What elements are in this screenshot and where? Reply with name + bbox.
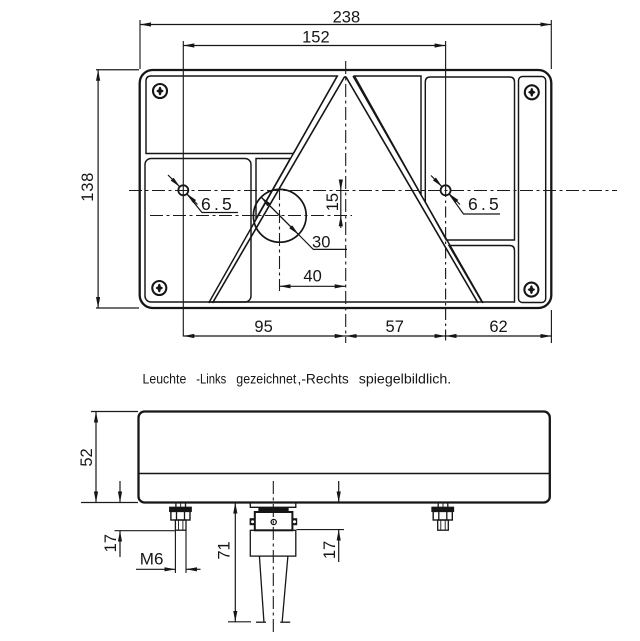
svg-text:95: 95: [254, 318, 272, 336]
svg-text:6.5: 6.5: [468, 194, 502, 214]
svg-text:152: 152: [302, 29, 330, 47]
svg-text:17: 17: [102, 534, 120, 552]
svg-text:15: 15: [324, 193, 342, 211]
svg-text:Leuchte: Leuchte: [143, 372, 187, 387]
svg-text:71: 71: [216, 541, 234, 559]
svg-text:138: 138: [79, 172, 97, 202]
svg-text:M6: M6: [140, 550, 164, 569]
svg-text:62: 62: [489, 318, 507, 336]
svg-text:30: 30: [312, 234, 330, 252]
svg-text:-Links: -Links: [196, 372, 226, 387]
svg-text:6.5: 6.5: [201, 194, 235, 214]
svg-text:17: 17: [321, 541, 339, 559]
svg-text:40: 40: [303, 268, 321, 286]
svg-text:,-Rechts: ,-Rechts: [298, 372, 349, 387]
svg-text:gezeichnet: gezeichnet: [236, 372, 296, 387]
svg-text:238: 238: [333, 8, 361, 26]
svg-text:57: 57: [386, 318, 404, 336]
svg-text:spiegelbildlich.: spiegelbildlich.: [359, 372, 452, 387]
svg-text:52: 52: [78, 448, 96, 466]
